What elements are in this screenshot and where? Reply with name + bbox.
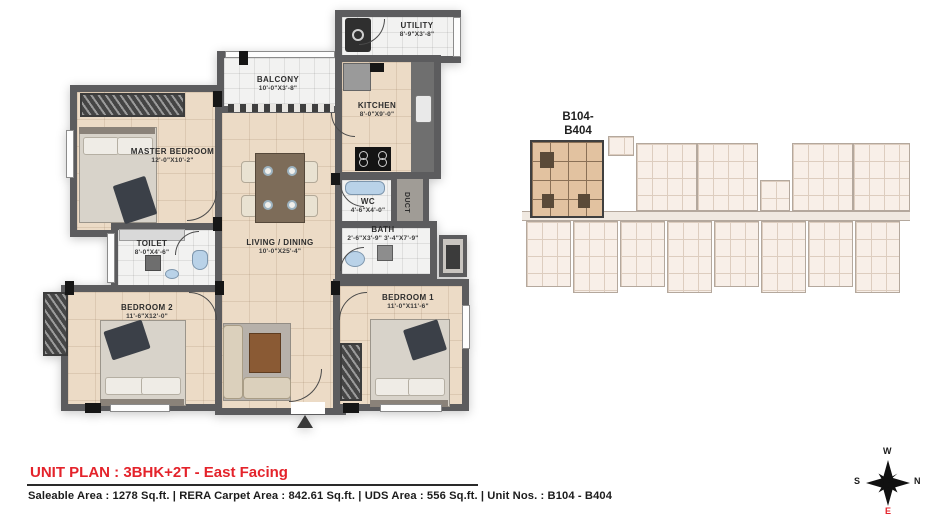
burner xyxy=(378,158,387,167)
entry-opening xyxy=(291,402,325,414)
ac-unit xyxy=(446,245,460,269)
room-name: BEDROOM 1 xyxy=(358,293,458,303)
wall-jamb xyxy=(215,281,224,295)
pillow xyxy=(375,378,412,396)
room-name: BATH xyxy=(337,225,429,235)
refrigerator xyxy=(343,63,371,91)
unit-plan-details: Saleable Area : 1278 Sq.ft. | RERA Carpe… xyxy=(28,490,612,502)
room-name: LIVING / DINING xyxy=(230,238,330,248)
compass-west: W xyxy=(883,446,892,456)
compass-south: S xyxy=(854,476,860,486)
room-label-bedroom-1: BEDROOM 1 11'-0"X11'-6" xyxy=(358,293,458,312)
room-name: BEDROOM 2 xyxy=(97,303,197,313)
keyplan-unit xyxy=(761,221,806,293)
keyplan-furniture xyxy=(540,152,554,168)
bed-throw xyxy=(113,176,158,225)
keyplan-unit xyxy=(808,221,853,287)
keyplan-unit xyxy=(620,221,665,287)
page: { "plan": { "rooms": [ {"name": "MASTER … xyxy=(0,0,926,520)
sofa-section xyxy=(243,377,291,399)
keyplan-unit xyxy=(573,221,618,293)
unit-plan-title: UNIT PLAN : 3BHK+2T - East Facing xyxy=(30,464,288,481)
room-dims: 8'-0"X9'-0" xyxy=(337,111,417,119)
room-label-master-bedroom: MASTER BEDROOM 12'-0"X10'-2" xyxy=(125,147,220,166)
room-name: UTILITY xyxy=(377,21,457,31)
room-dims: 8'-0"X4'-6" xyxy=(117,249,187,257)
room-label-toilet: TOILET 8'-0"X4'-6" xyxy=(117,239,187,258)
bed-bedroom-2 xyxy=(100,320,186,406)
room-dims: 10'-0"X3'-8" xyxy=(228,85,328,93)
keyplan-unit xyxy=(667,221,712,293)
room-label-bath: BATH 2'-6"X3'-9" 3'-4"X7'-9" xyxy=(337,225,429,244)
wardrobe-bedroom-2 xyxy=(43,292,68,356)
wall-jamb xyxy=(85,403,101,413)
compass-rose: W N S E xyxy=(852,448,924,518)
window-toilet xyxy=(107,233,115,283)
room-dims: 12'-0"X10'-2" xyxy=(125,157,220,165)
keyplan-unit-label: B104- B404 xyxy=(548,110,608,139)
keyplan-unit xyxy=(714,221,759,287)
unit-floor-plan: MASTER BEDROOM 12'-0"X10'-2" BALCONY 10'… xyxy=(25,5,480,425)
wall-jamb xyxy=(331,173,340,185)
room-label-utility: UTILITY 8'-9"X3'-8" xyxy=(377,21,457,40)
bed-bedroom-1 xyxy=(370,319,450,407)
room-dims: 11'-0"X11'-6" xyxy=(358,303,458,311)
room-name: TOILET xyxy=(117,239,187,249)
window-master xyxy=(66,130,74,178)
keyplan-unit xyxy=(853,143,910,211)
bed-master xyxy=(79,127,157,223)
room-name: WC xyxy=(343,197,393,207)
keyplan-unit xyxy=(636,143,697,211)
room-dims: 11'-6"X12'-0" xyxy=(97,313,197,321)
coffee-table xyxy=(249,333,281,373)
keyplan-unit xyxy=(792,143,853,211)
key-plan: B104- B404 xyxy=(520,108,912,300)
pillow xyxy=(83,137,119,155)
wall-jamb xyxy=(239,51,248,65)
pillow xyxy=(408,378,445,396)
room-label-bedroom-2: BEDROOM 2 11'-6"X12'-0" xyxy=(97,303,197,322)
keyplan-unit xyxy=(855,221,900,293)
room-name: KITCHEN xyxy=(337,101,417,111)
keyplan-label-line2: B404 xyxy=(564,125,592,137)
keyplan-furniture xyxy=(542,194,554,208)
entry-arrow-icon xyxy=(297,415,313,428)
room-dims: 8'-9"X3'-8" xyxy=(377,31,457,39)
kitchen-sink xyxy=(415,95,432,123)
keyplan-unit-stub xyxy=(760,180,790,211)
keyplan-unit-highlighted xyxy=(530,140,604,218)
window-bedroom-2 xyxy=(110,404,170,412)
keyplan-unit-stub xyxy=(608,136,634,156)
window-bedroom-1 xyxy=(380,404,442,412)
compass-east: E xyxy=(885,506,891,516)
wall-jamb xyxy=(331,281,340,295)
keyplan-furniture xyxy=(578,194,590,208)
pillow xyxy=(105,377,145,395)
room-label-living-dining: LIVING / DINING 10'-0"X25'-4" xyxy=(230,238,330,257)
room-name: DUCT xyxy=(402,183,411,223)
plate xyxy=(263,200,273,210)
keyplan-unit xyxy=(697,143,758,211)
plate xyxy=(287,166,297,176)
keyplan-unit xyxy=(526,221,571,287)
toilet-basin xyxy=(165,269,179,279)
room-dims: 10'-0"X25'-4" xyxy=(230,248,330,256)
plate xyxy=(263,166,273,176)
room-name: BALCONY xyxy=(228,75,328,85)
bath-geyser xyxy=(377,245,393,261)
room-label-wc: WC 4'-6"X4'-0" xyxy=(343,197,393,216)
footer-divider xyxy=(27,484,478,486)
ac-ledge xyxy=(439,235,467,277)
room-label-duct: DUCT xyxy=(402,183,411,223)
stove xyxy=(355,147,391,171)
burner xyxy=(359,158,368,167)
keyplan-label-line1: B104- xyxy=(562,111,593,123)
bed-headboard xyxy=(79,127,155,134)
wall-jamb xyxy=(343,403,359,413)
pillow xyxy=(141,377,181,395)
room-label-balcony: BALCONY 10'-0"X3'-8" xyxy=(228,75,328,94)
room-label-kitchen: KITCHEN 8'-0"X9'-0" xyxy=(337,101,417,120)
dining-table xyxy=(255,153,305,223)
plate xyxy=(287,200,297,210)
room-name: MASTER BEDROOM xyxy=(125,147,220,157)
room-dims: 2'-6"X3'-9" 3'-4"X7'-9" xyxy=(337,235,429,243)
balcony-slider xyxy=(228,104,334,112)
sofa xyxy=(223,325,243,399)
compass-north: N xyxy=(914,476,921,486)
wall-jamb xyxy=(370,63,384,72)
bed-throw xyxy=(403,319,447,361)
wall-jamb xyxy=(65,281,74,295)
bed-throw xyxy=(103,320,150,361)
room-dims: 4'-6"X4'-0" xyxy=(343,207,393,215)
wall-jamb xyxy=(213,91,222,107)
wall-jamb xyxy=(213,217,222,231)
window-bedroom-1-side xyxy=(462,305,470,349)
wardrobe-bedroom-1 xyxy=(340,343,362,401)
wardrobe-master xyxy=(80,93,185,117)
